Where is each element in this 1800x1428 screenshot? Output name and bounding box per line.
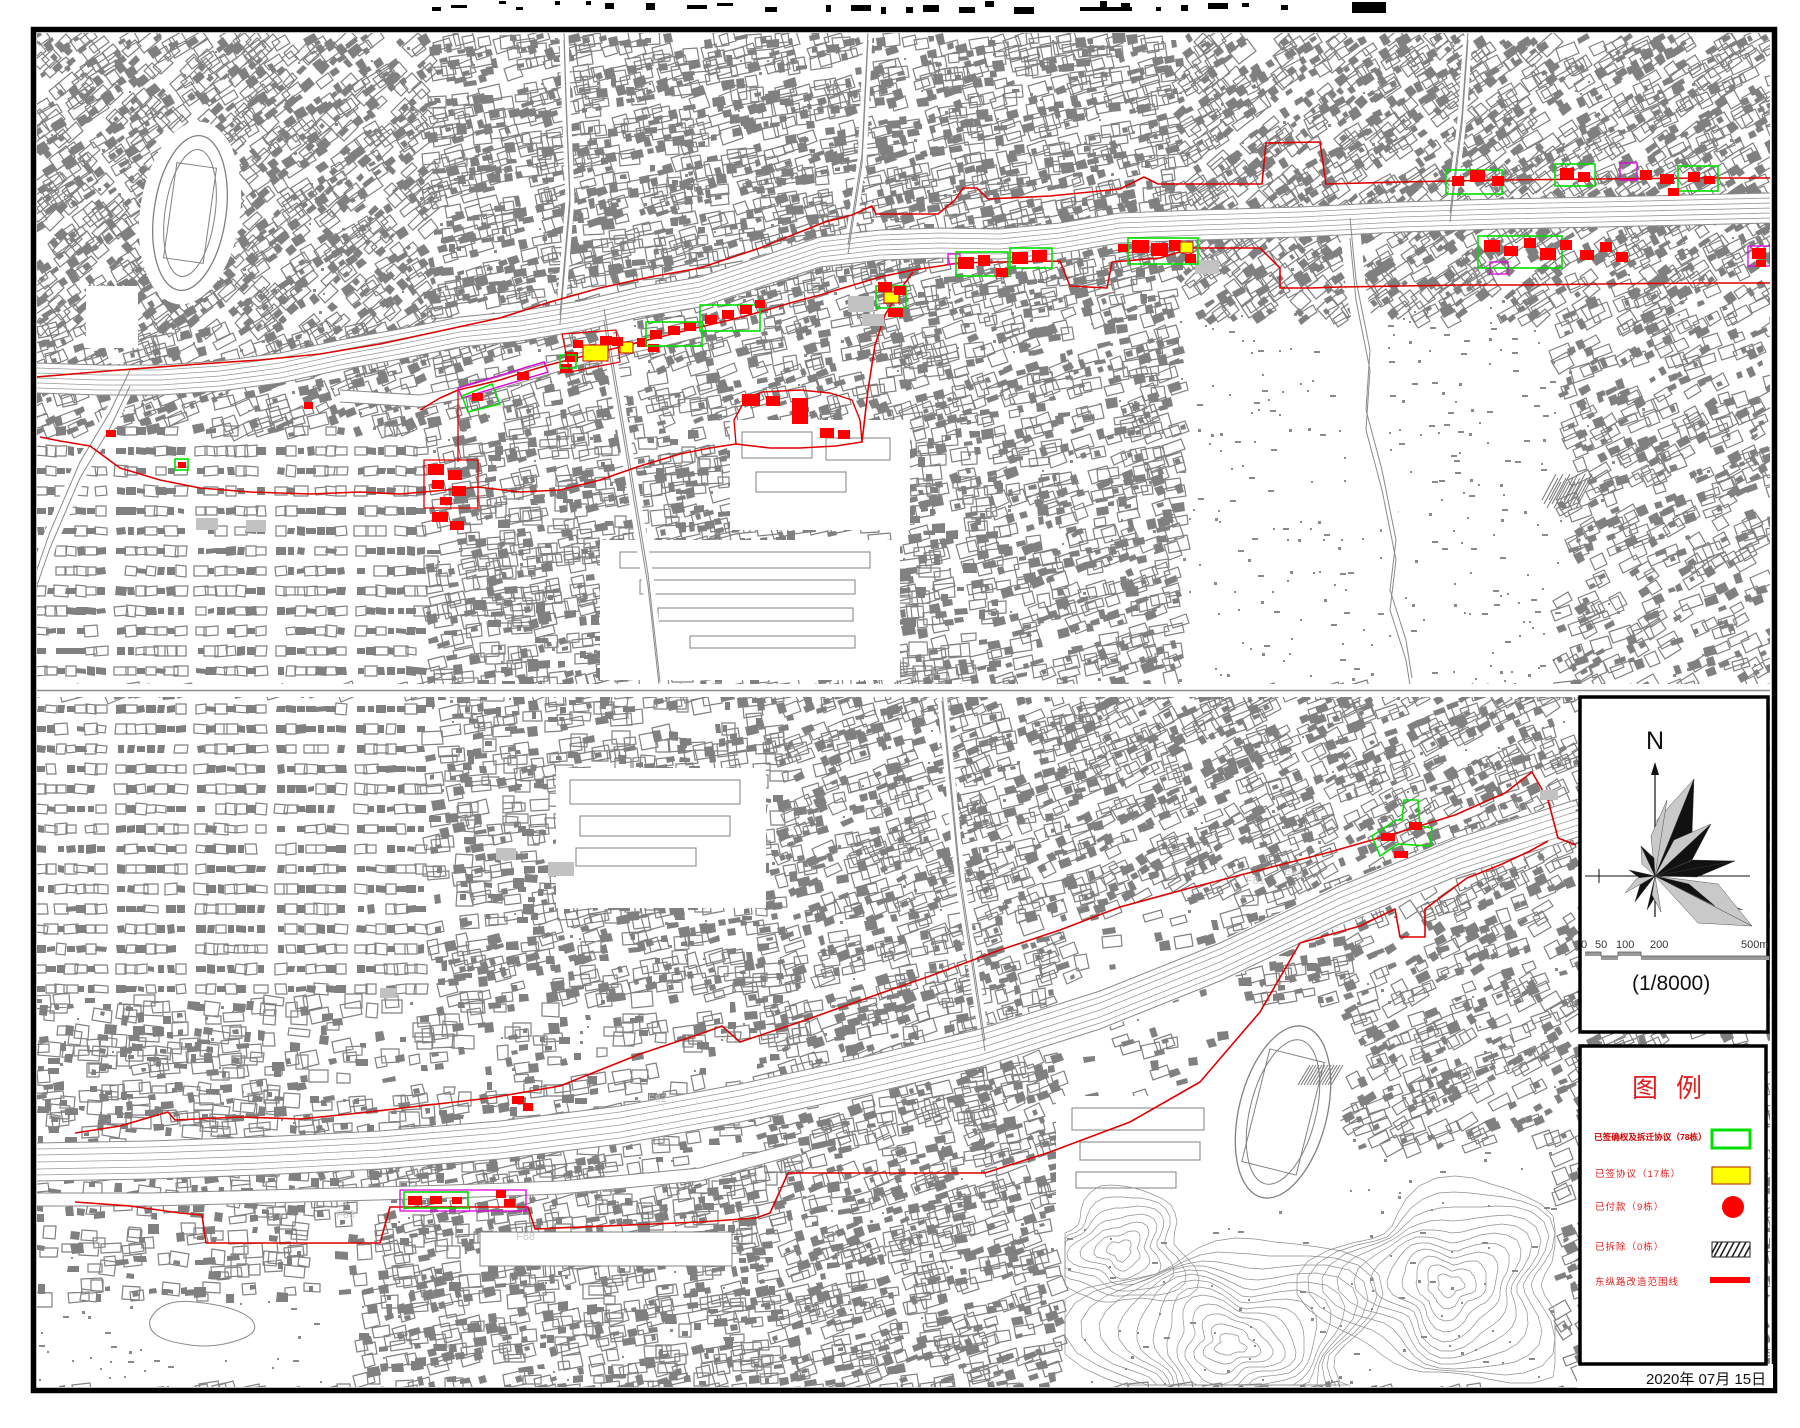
svg-text:N: N: [1646, 727, 1664, 755]
svg-text:已签确权及拆迁协议（78栋）: 已签确权及拆迁协议（78栋）: [1594, 1131, 1707, 1142]
svg-text:图例: 图例: [1632, 1073, 1720, 1103]
svg-text:F53: F53: [1200, 265, 1219, 277]
svg-text:200: 200: [1650, 939, 1668, 951]
svg-text:F82: F82: [648, 1093, 667, 1105]
svg-text:已拆除（0栋）: 已拆除（0栋）: [1595, 1241, 1664, 1253]
svg-text:500m: 500m: [1741, 939, 1769, 951]
svg-text:已付款（9栋）: 已付款（9栋）: [1595, 1201, 1664, 1213]
svg-text:0: 0: [1581, 939, 1587, 951]
svg-text:100: 100: [1616, 939, 1634, 951]
svg-text:东纵路改造范围线: 东纵路改造范围线: [1595, 1276, 1679, 1288]
svg-text:F81: F81: [1246, 875, 1265, 887]
svg-text:已签协议（17栋）: 已签协议（17栋）: [1595, 1168, 1681, 1180]
svg-text:F63: F63: [336, 1209, 355, 1221]
svg-text:50: 50: [1595, 939, 1607, 951]
svg-text:(1/8000): (1/8000): [1632, 972, 1710, 995]
svg-text:2020年 07月 15日: 2020年 07月 15日: [1646, 1371, 1766, 1388]
svg-text:F68: F68: [516, 1231, 535, 1243]
svg-text:F80: F80: [1284, 869, 1303, 881]
